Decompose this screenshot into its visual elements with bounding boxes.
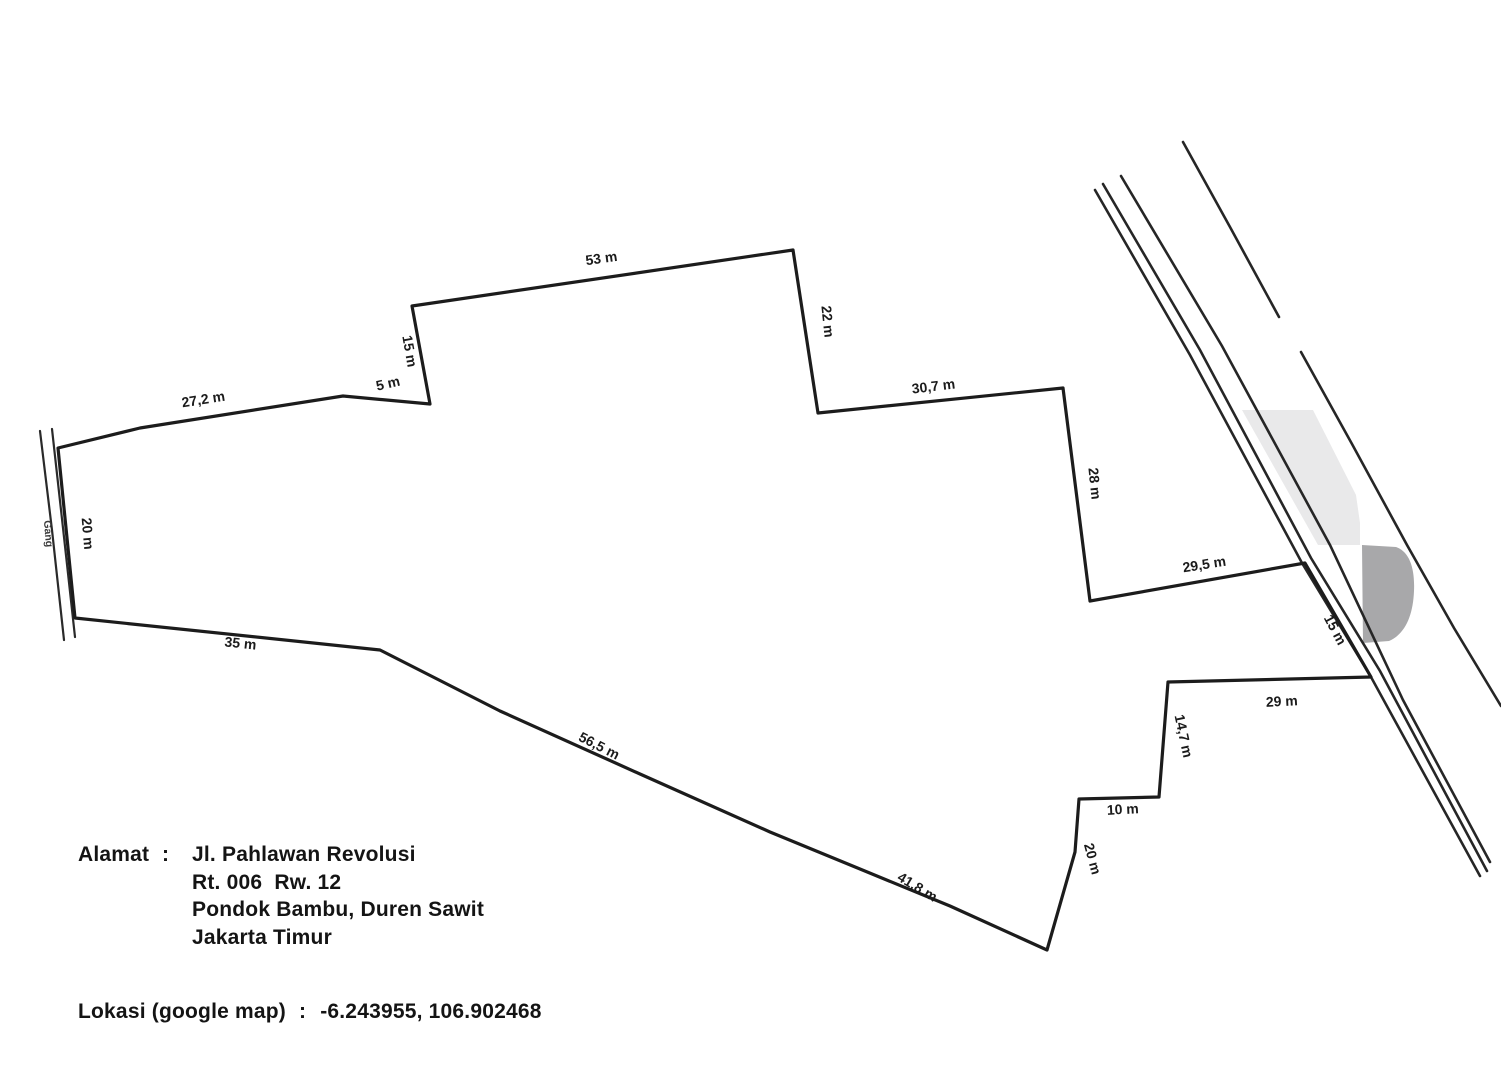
edge-label-56-5m: 56,5 m <box>576 729 622 763</box>
address-lines: Jl. Pahlawan Revolusi Rt. 006 Rw. 12 Pon… <box>192 841 484 951</box>
location-coordinates: -6.243955, 106.902468 <box>320 1000 541 1024</box>
road-left-edge-outer <box>1095 190 1480 876</box>
location-label: Lokasi (google map) <box>78 1000 286 1024</box>
site-plan-page: 15 m 53 m 22 m 30,7 m 28 m 29,5 m 15 m 2… <box>0 0 1501 1080</box>
location-block: Lokasi (google map) : -6.243955, 106.902… <box>78 1000 542 1024</box>
address-district: Pondok Bambu, Duren Sawit <box>192 896 484 924</box>
edge-label-22m: 22 m <box>818 305 837 338</box>
edge-label-5m: 5 m <box>374 373 401 394</box>
edge-label-28m: 28 m <box>1085 467 1104 500</box>
alley-gang-label: Gang <box>41 520 55 548</box>
address-street: Jl. Pahlawan Revolusi <box>192 841 484 869</box>
address-rt-rw: Rt. 006 Rw. 12 <box>192 869 484 897</box>
address-colon: : <box>162 841 192 869</box>
address-label: Alamat <box>78 841 162 869</box>
road-right-edge-upper <box>1183 142 1279 317</box>
edge-label-14-7m: 14,7 m <box>1172 713 1197 759</box>
edge-label-20m-left: 20 m <box>79 517 98 550</box>
building-footprint-light <box>1242 410 1360 545</box>
address-block: Alamat : Jl. Pahlawan Revolusi Rt. 006 R… <box>78 841 484 951</box>
address-city: Jakarta Timur <box>192 924 484 952</box>
edge-label-53m: 53 m <box>584 248 618 268</box>
location-colon: : <box>299 1000 306 1024</box>
edge-label-30-7m: 30,7 m <box>911 375 956 396</box>
edge-label-27-2m: 27,2 m <box>180 388 226 411</box>
edge-label-29-5m: 29,5 m <box>1181 553 1227 576</box>
edge-label-29m: 29 m <box>1265 692 1298 710</box>
edge-label-10m: 10 m <box>1106 800 1139 818</box>
edge-label-20m-right: 20 m <box>1081 841 1105 876</box>
edge-label-35m: 35 m <box>224 633 257 652</box>
